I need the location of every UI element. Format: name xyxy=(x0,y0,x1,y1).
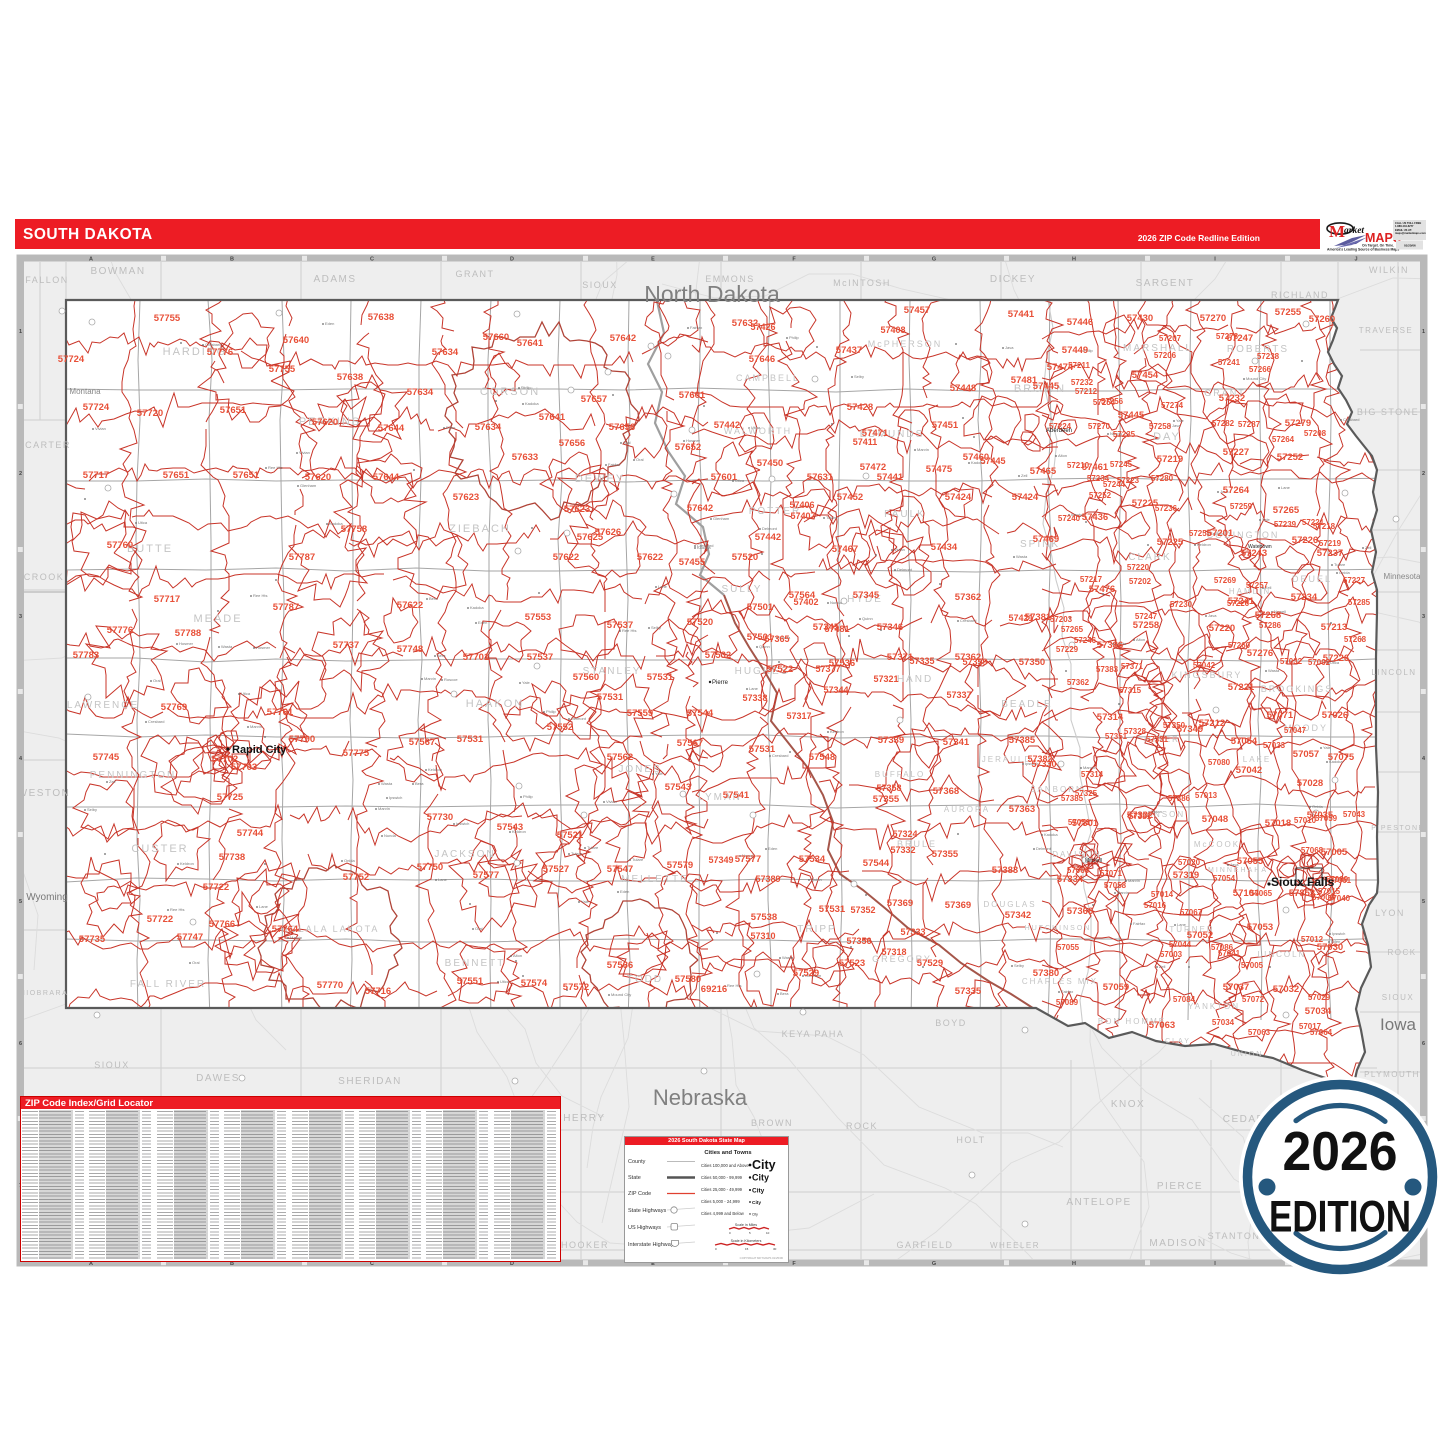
svg-text:57048: 57048 xyxy=(1202,814,1228,825)
svg-text:Marvin: Marvin xyxy=(378,806,390,811)
svg-text:57080: 57080 xyxy=(1208,758,1231,767)
svg-text:57442: 57442 xyxy=(755,532,781,543)
svg-text:SARGENT: SARGENT xyxy=(1136,278,1195,289)
svg-text:57363: 57363 xyxy=(1009,804,1035,815)
svg-text:57631: 57631 xyxy=(807,472,834,483)
svg-text:57787: 57787 xyxy=(289,552,315,563)
svg-text:57054: 57054 xyxy=(1231,736,1258,747)
svg-text:57544: 57544 xyxy=(687,708,714,719)
svg-text:57620: 57620 xyxy=(305,472,331,483)
svg-text:BUTTE: BUTTE xyxy=(127,543,173,555)
svg-text:Fairfax: Fairfax xyxy=(608,462,620,467)
svg-text:MEADE: MEADE xyxy=(193,613,242,625)
svg-text:57002: 57002 xyxy=(1308,658,1331,667)
svg-text:Yale: Yale xyxy=(522,680,530,685)
svg-text:Nunda: Nunda xyxy=(384,833,397,838)
svg-text:57651: 57651 xyxy=(163,470,190,481)
svg-text:Fairfax: Fairfax xyxy=(1133,921,1145,926)
svg-text:57744: 57744 xyxy=(237,828,264,839)
svg-text:Philip: Philip xyxy=(523,794,534,799)
svg-text:Alton: Alton xyxy=(1136,637,1145,642)
svg-text:Selby: Selby xyxy=(651,625,661,630)
svg-text:57084: 57084 xyxy=(1173,995,1196,1004)
svg-text:Java: Java xyxy=(1208,613,1217,618)
svg-text:Utica: Utica xyxy=(500,979,510,984)
svg-text:57227: 57227 xyxy=(1343,576,1366,585)
svg-text:57776: 57776 xyxy=(107,625,133,636)
svg-text:Bera: Bera xyxy=(780,991,789,996)
svg-text:57362: 57362 xyxy=(955,592,981,603)
svg-text:57475: 57475 xyxy=(926,464,953,475)
svg-text:57534: 57534 xyxy=(799,854,826,865)
svg-text:57522: 57522 xyxy=(767,664,793,675)
svg-text:57656: 57656 xyxy=(609,422,635,433)
svg-text:Ipswich: Ipswich xyxy=(456,821,469,826)
svg-text:57567: 57567 xyxy=(677,738,703,749)
svg-text:Lane: Lane xyxy=(749,686,759,691)
svg-text:Roscoe: Roscoe xyxy=(444,677,458,682)
svg-text:Bera: Bera xyxy=(429,596,438,601)
svg-text:57010: 57010 xyxy=(1294,816,1317,825)
svg-text:57335: 57335 xyxy=(955,986,982,997)
svg-text:Oral: Oral xyxy=(192,960,200,965)
svg-text:WILKIN: WILKIN xyxy=(1369,265,1409,275)
svg-text:57552: 57552 xyxy=(547,722,573,733)
svg-text:CAMPBELL: CAMPBELL xyxy=(736,373,800,383)
svg-text:57366: 57366 xyxy=(1067,906,1093,917)
svg-text:Mitchell: Mitchell xyxy=(1085,858,1102,864)
svg-text:57770: 57770 xyxy=(317,980,343,991)
svg-text:57430: 57430 xyxy=(1127,313,1153,324)
svg-text:Bera: Bera xyxy=(437,653,446,658)
svg-text:57406: 57406 xyxy=(789,500,814,510)
svg-text:57559: 57559 xyxy=(627,708,653,719)
svg-text:Tulare: Tulare xyxy=(632,857,644,862)
svg-text:57318: 57318 xyxy=(881,947,906,957)
svg-text:SHERIDAN: SHERIDAN xyxy=(338,1076,402,1087)
svg-text:57344: 57344 xyxy=(823,685,848,695)
svg-text:57748: 57748 xyxy=(397,644,423,655)
svg-text:Onida: Onida xyxy=(1312,804,1323,809)
svg-text:57278: 57278 xyxy=(1216,332,1239,341)
svg-text:Cresbard: Cresbard xyxy=(697,543,713,548)
svg-text:57407: 57407 xyxy=(790,511,815,521)
svg-text:57066: 57066 xyxy=(1067,866,1090,875)
svg-text:57232: 57232 xyxy=(1071,378,1094,387)
svg-text:57219: 57219 xyxy=(1319,539,1342,548)
svg-text:Yale: Yale xyxy=(1262,517,1270,522)
svg-text:57223: 57223 xyxy=(1117,476,1140,485)
svg-text:57237: 57237 xyxy=(1317,548,1343,559)
svg-text:CARTER: CARTER xyxy=(25,440,71,450)
svg-text:Marvin: Marvin xyxy=(290,935,302,940)
svg-text:57245: 57245 xyxy=(1110,460,1133,469)
svg-text:GRANT: GRANT xyxy=(456,269,495,279)
svg-text:DOUGLAS: DOUGLAS xyxy=(983,900,1036,909)
svg-text:KINGSBURY: KINGSBURY xyxy=(1172,670,1243,680)
svg-text:Marvin: Marvin xyxy=(1128,878,1140,883)
svg-text:57324: 57324 xyxy=(892,829,917,839)
svg-text:57063: 57063 xyxy=(1149,1020,1175,1031)
svg-text:Alton: Alton xyxy=(1058,453,1067,458)
svg-text:57717: 57717 xyxy=(154,594,180,605)
svg-text:57402: 57402 xyxy=(793,597,818,607)
svg-text:57359: 57359 xyxy=(962,657,987,667)
svg-text:57775: 57775 xyxy=(343,748,370,759)
svg-text:Vivian: Vivian xyxy=(95,426,106,431)
svg-text:15: 15 xyxy=(745,1247,749,1251)
svg-text:57442: 57442 xyxy=(714,420,740,431)
svg-text:57543: 57543 xyxy=(665,782,691,793)
svg-text:McCOOK: McCOOK xyxy=(1194,840,1240,849)
svg-text:BIG STONE: BIG STONE xyxy=(1357,407,1419,417)
svg-text:57386: 57386 xyxy=(1168,794,1191,803)
svg-text:Cresbard: Cresbard xyxy=(148,719,164,724)
svg-text:57279: 57279 xyxy=(1285,418,1311,429)
svg-text:Delmont: Delmont xyxy=(571,716,587,721)
svg-text:City: City xyxy=(752,1188,765,1195)
svg-text:57437: 57437 xyxy=(836,345,862,356)
svg-text:Tulare: Tulare xyxy=(1334,562,1346,567)
svg-text:57531: 57531 xyxy=(749,744,776,755)
svg-text:Marvin: Marvin xyxy=(250,724,262,729)
svg-text:57716: 57716 xyxy=(365,986,391,997)
svg-text:YANKTON: YANKTON xyxy=(1188,1002,1240,1011)
svg-text:Zell: Zell xyxy=(1365,545,1372,550)
svg-text:57335: 57335 xyxy=(909,656,934,666)
svg-text:57622: 57622 xyxy=(553,552,579,563)
svg-text:Glenham: Glenham xyxy=(713,516,730,521)
svg-text:57202: 57202 xyxy=(1129,577,1152,586)
svg-text:57450: 57450 xyxy=(757,458,783,469)
svg-text:57730: 57730 xyxy=(427,812,453,823)
svg-text:McPHERSON: McPHERSON xyxy=(868,339,943,349)
svg-text:57055: 57055 xyxy=(1057,943,1080,952)
svg-text:57580: 57580 xyxy=(675,974,701,985)
svg-text:57369: 57369 xyxy=(945,900,971,911)
svg-text:57332: 57332 xyxy=(890,845,915,855)
svg-text:Selby: Selby xyxy=(87,807,97,812)
svg-text:SULLY: SULLY xyxy=(722,584,763,595)
svg-text:57481: 57481 xyxy=(824,624,849,634)
svg-text:2: 2 xyxy=(19,471,22,477)
svg-text:30: 30 xyxy=(773,1247,777,1251)
svg-text:Cities and Towns: Cities and Towns xyxy=(704,1150,751,1156)
svg-text:Zell: Zell xyxy=(1021,473,1028,478)
svg-text:57764: 57764 xyxy=(272,924,299,935)
svg-text:57722: 57722 xyxy=(203,882,229,893)
svg-text:57501: 57501 xyxy=(747,602,774,613)
svg-text:57446: 57446 xyxy=(1067,317,1093,328)
svg-text:Philip: Philip xyxy=(789,335,800,340)
svg-text:57574: 57574 xyxy=(521,978,548,989)
svg-text:57042: 57042 xyxy=(1236,765,1262,776)
svg-text:57745: 57745 xyxy=(93,752,120,763)
svg-text:Delmont: Delmont xyxy=(762,526,778,531)
svg-text:BOYD: BOYD xyxy=(935,1018,967,1028)
svg-text:57227: 57227 xyxy=(1223,447,1249,458)
svg-text:2: 2 xyxy=(1422,471,1425,477)
svg-text:EDITION: EDITION xyxy=(1269,1193,1411,1242)
svg-text:57790: 57790 xyxy=(289,734,315,745)
svg-text:57241: 57241 xyxy=(1218,358,1241,367)
svg-text:57548: 57548 xyxy=(809,752,835,763)
svg-text:Glenham: Glenham xyxy=(300,483,317,488)
svg-text:57441: 57441 xyxy=(1008,309,1035,320)
svg-text:Quinn: Quinn xyxy=(759,644,770,649)
svg-text:57342: 57342 xyxy=(1005,910,1031,921)
svg-text:North Dakota: North Dakota xyxy=(644,281,780,307)
svg-text:57577: 57577 xyxy=(473,870,499,881)
svg-text:Cities 50,000 - 99,999: Cities 50,000 - 99,999 xyxy=(701,1175,743,1180)
svg-text:57285: 57285 xyxy=(1348,598,1371,607)
svg-text:57386: 57386 xyxy=(1097,640,1123,651)
svg-text:Vivian: Vivian xyxy=(894,547,905,552)
svg-text:57255: 57255 xyxy=(1275,307,1302,318)
svg-text:57434: 57434 xyxy=(931,542,958,553)
svg-text:Kadoka: Kadoka xyxy=(470,605,484,610)
svg-text:Cresbard: Cresbard xyxy=(1343,417,1359,422)
svg-text:57750: 57750 xyxy=(417,862,443,873)
svg-text:57776: 57776 xyxy=(207,347,233,358)
svg-text:57788: 57788 xyxy=(175,628,201,639)
svg-text:57265: 57265 xyxy=(1061,625,1084,634)
svg-text:Minnesota: Minnesota xyxy=(1384,572,1421,581)
svg-text:57321: 57321 xyxy=(873,674,898,684)
svg-text:Cities 25,000 - 49,999: Cities 25,000 - 49,999 xyxy=(701,1187,743,1192)
svg-text:57016: 57016 xyxy=(1144,901,1167,910)
svg-text:Mound City: Mound City xyxy=(1246,376,1266,381)
svg-text:57212: 57212 xyxy=(1075,387,1098,396)
svg-text:57211: 57211 xyxy=(1068,361,1090,370)
svg-text:MELLETTE: MELLETTE xyxy=(621,874,689,885)
svg-text:57059: 57059 xyxy=(1315,814,1338,823)
svg-text:0: 0 xyxy=(715,1247,717,1251)
svg-text:57059: 57059 xyxy=(1103,982,1129,993)
svg-text:CUSTER: CUSTER xyxy=(131,843,188,855)
svg-text:Yale: Yale xyxy=(581,899,589,904)
svg-text:DAWES: DAWES xyxy=(196,1073,240,1084)
svg-text:57445: 57445 xyxy=(1033,381,1060,392)
svg-text:57717: 57717 xyxy=(83,470,109,481)
svg-text:57226: 57226 xyxy=(1292,535,1318,546)
svg-text:57455: 57455 xyxy=(679,557,706,568)
svg-text:57057: 57057 xyxy=(1293,749,1319,760)
svg-text:SIOUX: SIOUX xyxy=(94,1060,130,1070)
svg-text:PENNINGTON: PENNINGTON xyxy=(90,770,177,781)
svg-text:maps@marketmaps.com: maps@marketmaps.com xyxy=(1395,231,1426,235)
svg-text:SIOUX: SIOUX xyxy=(1382,993,1414,1002)
svg-text:57755: 57755 xyxy=(269,364,296,375)
svg-text:Fairfax: Fairfax xyxy=(690,325,702,330)
svg-text:57044: 57044 xyxy=(1169,940,1192,949)
svg-text:57345: 57345 xyxy=(853,590,880,601)
svg-text:57701: 57701 xyxy=(463,652,490,663)
svg-text:57287: 57287 xyxy=(1238,420,1261,429)
svg-text:57358: 57358 xyxy=(876,783,901,793)
svg-text:57381: 57381 xyxy=(1129,812,1152,821)
svg-text:HAAKON: HAAKON xyxy=(466,698,524,710)
svg-text:3: 3 xyxy=(19,614,22,620)
svg-text:KEYA PAHA: KEYA PAHA xyxy=(782,1029,845,1039)
svg-text:Marvin: Marvin xyxy=(1117,890,1129,895)
svg-text:57738: 57738 xyxy=(219,852,245,863)
svg-text:57338: 57338 xyxy=(742,693,767,703)
svg-text:BOWMAN: BOWMAN xyxy=(90,266,145,277)
svg-text:57252: 57252 xyxy=(1277,452,1303,463)
svg-text:57527: 57527 xyxy=(543,864,569,875)
svg-text:57026: 57026 xyxy=(1322,710,1348,721)
svg-text:57601: 57601 xyxy=(711,472,738,483)
svg-text:57236: 57236 xyxy=(1155,504,1178,513)
svg-text:G: G xyxy=(932,256,936,262)
svg-text:57601: 57601 xyxy=(679,390,706,401)
svg-text:Hosmer: Hosmer xyxy=(256,645,271,650)
svg-text:Tulare: Tulare xyxy=(571,851,583,856)
svg-text:County: County xyxy=(628,1159,646,1165)
svg-text:57365: 57365 xyxy=(764,634,789,644)
svg-text:57219: 57219 xyxy=(1157,454,1183,465)
svg-text:57055: 57055 xyxy=(1237,856,1264,867)
svg-text:57424: 57424 xyxy=(945,492,972,503)
svg-text:57005: 57005 xyxy=(1241,961,1264,970)
svg-text:57259: 57259 xyxy=(1230,502,1253,511)
svg-text:Onida: Onida xyxy=(1339,570,1350,575)
svg-text:57005: 57005 xyxy=(1321,847,1348,858)
svg-text:PIERCE: PIERCE xyxy=(1157,1181,1203,1192)
svg-text:TRIPP: TRIPP xyxy=(797,924,836,935)
svg-text:57355: 57355 xyxy=(932,849,959,860)
svg-text:Oral: Oral xyxy=(153,678,161,683)
svg-text:Watertown: Watertown xyxy=(1248,544,1272,550)
svg-text:Wasta: Wasta xyxy=(221,644,233,649)
svg-text:JONES: JONES xyxy=(618,764,661,775)
svg-text:D: D xyxy=(510,256,514,262)
svg-text:57269: 57269 xyxy=(1214,576,1237,585)
svg-text:Lane: Lane xyxy=(438,877,448,882)
svg-text:57385: 57385 xyxy=(1009,735,1036,746)
svg-text:57362: 57362 xyxy=(1067,678,1090,687)
svg-text:57634: 57634 xyxy=(432,347,459,358)
svg-text:57758: 57758 xyxy=(341,524,367,535)
svg-text:Zell: Zell xyxy=(1159,964,1166,969)
svg-text:57660: 57660 xyxy=(483,332,509,343)
svg-text:Oral: Oral xyxy=(636,457,644,462)
svg-text:5: 5 xyxy=(19,899,22,905)
svg-text:57270: 57270 xyxy=(1200,313,1226,324)
svg-text:57229: 57229 xyxy=(1056,645,1079,654)
svg-text:MINNEHAHA: MINNEHAHA xyxy=(1208,867,1268,874)
svg-text:57725: 57725 xyxy=(217,792,244,803)
svg-text:57032: 57032 xyxy=(1273,984,1299,995)
svg-text:57065: 57065 xyxy=(1250,889,1273,898)
svg-text:57541: 57541 xyxy=(723,790,750,801)
svg-text:57421: 57421 xyxy=(1008,613,1033,623)
svg-text:57562: 57562 xyxy=(607,752,633,763)
svg-text:57068: 57068 xyxy=(1301,846,1324,855)
svg-text:Vivian: Vivian xyxy=(299,450,310,455)
svg-text:57426: 57426 xyxy=(750,322,775,332)
svg-text:57380: 57380 xyxy=(1033,968,1059,979)
svg-text:57724: 57724 xyxy=(83,402,110,413)
svg-text:1: 1 xyxy=(1422,329,1425,335)
svg-text:LINCOLN: LINCOLN xyxy=(1258,950,1307,959)
svg-text:57537: 57537 xyxy=(527,652,553,663)
svg-text:6: 6 xyxy=(19,1041,22,1047)
svg-text:57028: 57028 xyxy=(1297,778,1323,789)
svg-text:Fairfax: Fairfax xyxy=(1061,989,1073,994)
svg-text:57752: 57752 xyxy=(343,872,369,883)
svg-text:E: E xyxy=(651,256,655,262)
svg-text:57651: 57651 xyxy=(233,470,260,481)
svg-text:57317: 57317 xyxy=(786,711,811,721)
svg-text:FAULK: FAULK xyxy=(884,509,926,520)
svg-text:57334: 57334 xyxy=(1057,874,1084,885)
svg-text:57703: 57703 xyxy=(231,762,257,773)
svg-text:57644: 57644 xyxy=(373,472,400,483)
svg-text:57210: 57210 xyxy=(1067,461,1090,470)
svg-text:57537: 57537 xyxy=(607,620,633,631)
svg-text:Iowa: Iowa xyxy=(1380,1015,1416,1034)
svg-text:57634: 57634 xyxy=(407,387,434,398)
svg-text:57208: 57208 xyxy=(1304,429,1327,438)
svg-text:57383: 57383 xyxy=(992,865,1018,876)
svg-text:City: City xyxy=(752,1158,776,1172)
svg-text:NIOBRARA: NIOBRARA xyxy=(20,990,69,997)
svg-text:57449: 57449 xyxy=(1062,345,1088,356)
svg-text:57538: 57538 xyxy=(751,912,777,923)
svg-text:57735: 57735 xyxy=(79,934,106,945)
svg-text:Cities 100,000 and Above: Cities 100,000 and Above xyxy=(701,1163,749,1168)
svg-text:Eden: Eden xyxy=(325,321,334,326)
svg-text:69216: 69216 xyxy=(701,984,727,995)
svg-text:Tulare: Tulare xyxy=(587,845,599,850)
svg-text:BUFFALO: BUFFALO xyxy=(875,770,925,779)
svg-text:57220: 57220 xyxy=(1209,623,1235,634)
svg-text:57457: 57457 xyxy=(904,305,930,316)
svg-text:Eden: Eden xyxy=(446,425,455,430)
svg-text:Ree Hts: Ree Hts xyxy=(253,593,267,598)
svg-text:ANTELOPE: ANTELOPE xyxy=(1066,1197,1131,1208)
svg-text:57206: 57206 xyxy=(1154,351,1177,360)
svg-text:57047: 57047 xyxy=(1284,726,1307,735)
svg-text:JERAULD: JERAULD xyxy=(982,755,1032,764)
svg-text:57350: 57350 xyxy=(1019,657,1045,668)
svg-text:57217: 57217 xyxy=(1080,575,1103,584)
svg-text:57566: 57566 xyxy=(607,960,633,971)
svg-text:Keldron: Keldron xyxy=(1197,542,1211,547)
svg-text:57339: 57339 xyxy=(878,735,904,746)
svg-text:57034: 57034 xyxy=(1305,1006,1332,1017)
svg-text:57235: 57235 xyxy=(1113,430,1136,439)
svg-text:57531: 57531 xyxy=(457,734,484,745)
svg-text:57560: 57560 xyxy=(573,672,599,683)
svg-text:Utica: Utica xyxy=(241,691,251,696)
svg-text:Tulare: Tulare xyxy=(826,515,838,520)
svg-text:MADISON: MADISON xyxy=(1149,1238,1206,1249)
svg-text:57346: 57346 xyxy=(877,622,903,633)
svg-text:57553: 57553 xyxy=(525,612,551,623)
svg-text:Interstate Highways: Interstate Highways xyxy=(628,1242,677,1248)
svg-text:Wasta: Wasta xyxy=(381,781,393,786)
svg-text:57469: 57469 xyxy=(1033,534,1059,545)
svg-text:57020: 57020 xyxy=(1178,858,1201,867)
svg-text:57282: 57282 xyxy=(1212,419,1235,428)
svg-text:Sioux Falls: Sioux Falls xyxy=(1271,875,1335,889)
svg-text:57207: 57207 xyxy=(1159,334,1182,343)
svg-text:Wyoming: Wyoming xyxy=(26,892,68,903)
svg-text:57058: 57058 xyxy=(1104,881,1127,890)
